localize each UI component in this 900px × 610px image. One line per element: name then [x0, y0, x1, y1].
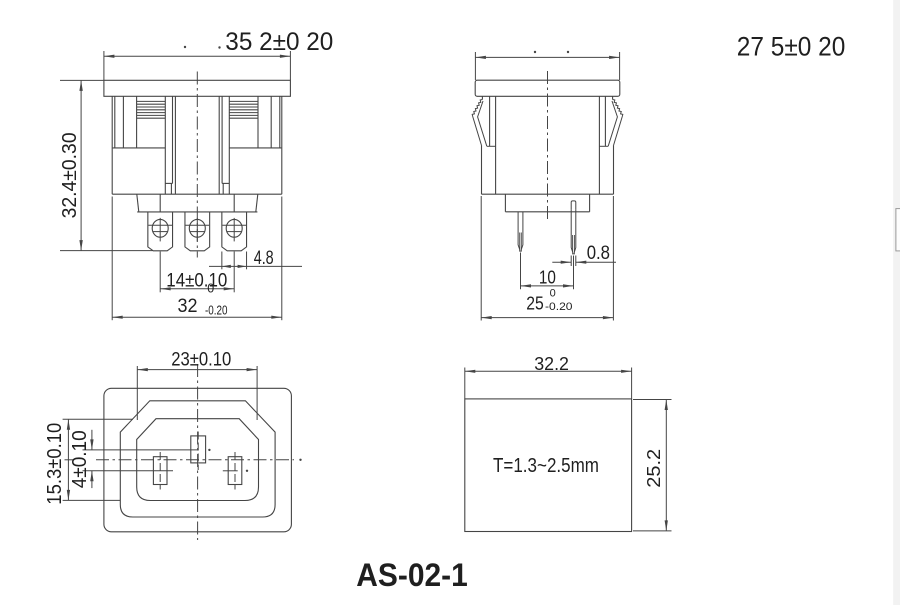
- svg-text:AS-02-1: AS-02-1: [356, 557, 468, 593]
- svg-text:15.3±0.10: 15.3±0.10: [44, 423, 66, 505]
- svg-text:14±0.10: 14±0.10: [166, 271, 227, 292]
- svg-text:32.2: 32.2: [534, 353, 569, 374]
- svg-text:0.8: 0.8: [587, 243, 610, 264]
- svg-text:0: 0: [207, 282, 214, 296]
- svg-text:4±0.10: 4±0.10: [69, 430, 91, 488]
- svg-text:23±0.10: 23±0.10: [171, 349, 231, 370]
- svg-text:27 5±0 20: 27 5±0 20: [737, 31, 846, 61]
- svg-text:-0.20: -0.20: [205, 303, 228, 317]
- svg-text:4.8: 4.8: [254, 248, 274, 269]
- svg-text:25.2: 25.2: [643, 449, 664, 488]
- svg-text:-0.20: -0.20: [545, 301, 573, 313]
- svg-text:25: 25: [526, 294, 544, 314]
- svg-text:32.4±0.30: 32.4±0.30: [59, 132, 81, 218]
- svg-text:10: 10: [539, 267, 556, 287]
- svg-text:T=1.3~2.5mm: T=1.3~2.5mm: [493, 455, 599, 477]
- svg-text:32: 32: [178, 295, 198, 317]
- svg-text:35 2±0 20: 35 2±0 20: [225, 28, 333, 56]
- svg-text:0: 0: [550, 287, 556, 299]
